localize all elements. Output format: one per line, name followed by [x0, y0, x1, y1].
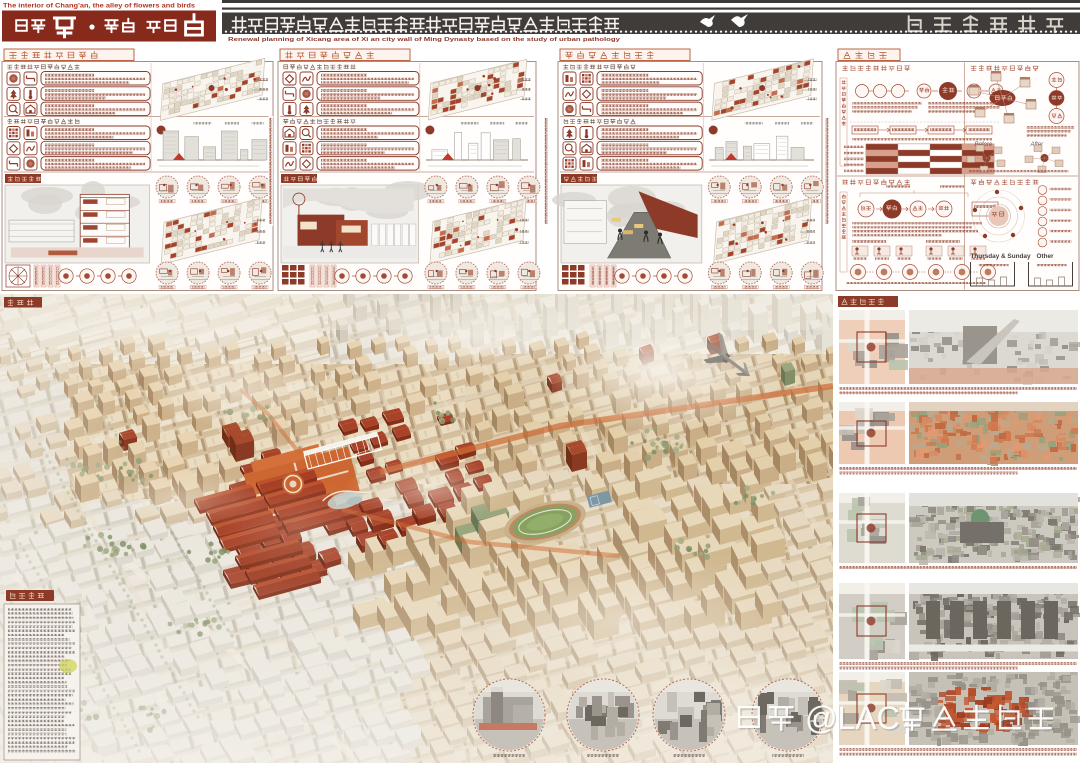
svg-text:Other: Other: [1037, 253, 1055, 260]
svg-text:The interior of Chang'an, the: The interior of Chang'an, the alley of f…: [3, 3, 195, 10]
svg-text:Thursday & Sunday: Thursday & Sunday: [971, 253, 1031, 260]
svg-text:Renewal planning of Xicang are: Renewal planning of Xicang area of Xi an…: [228, 37, 621, 43]
svg-text:@LAC: @LAC: [805, 700, 900, 736]
